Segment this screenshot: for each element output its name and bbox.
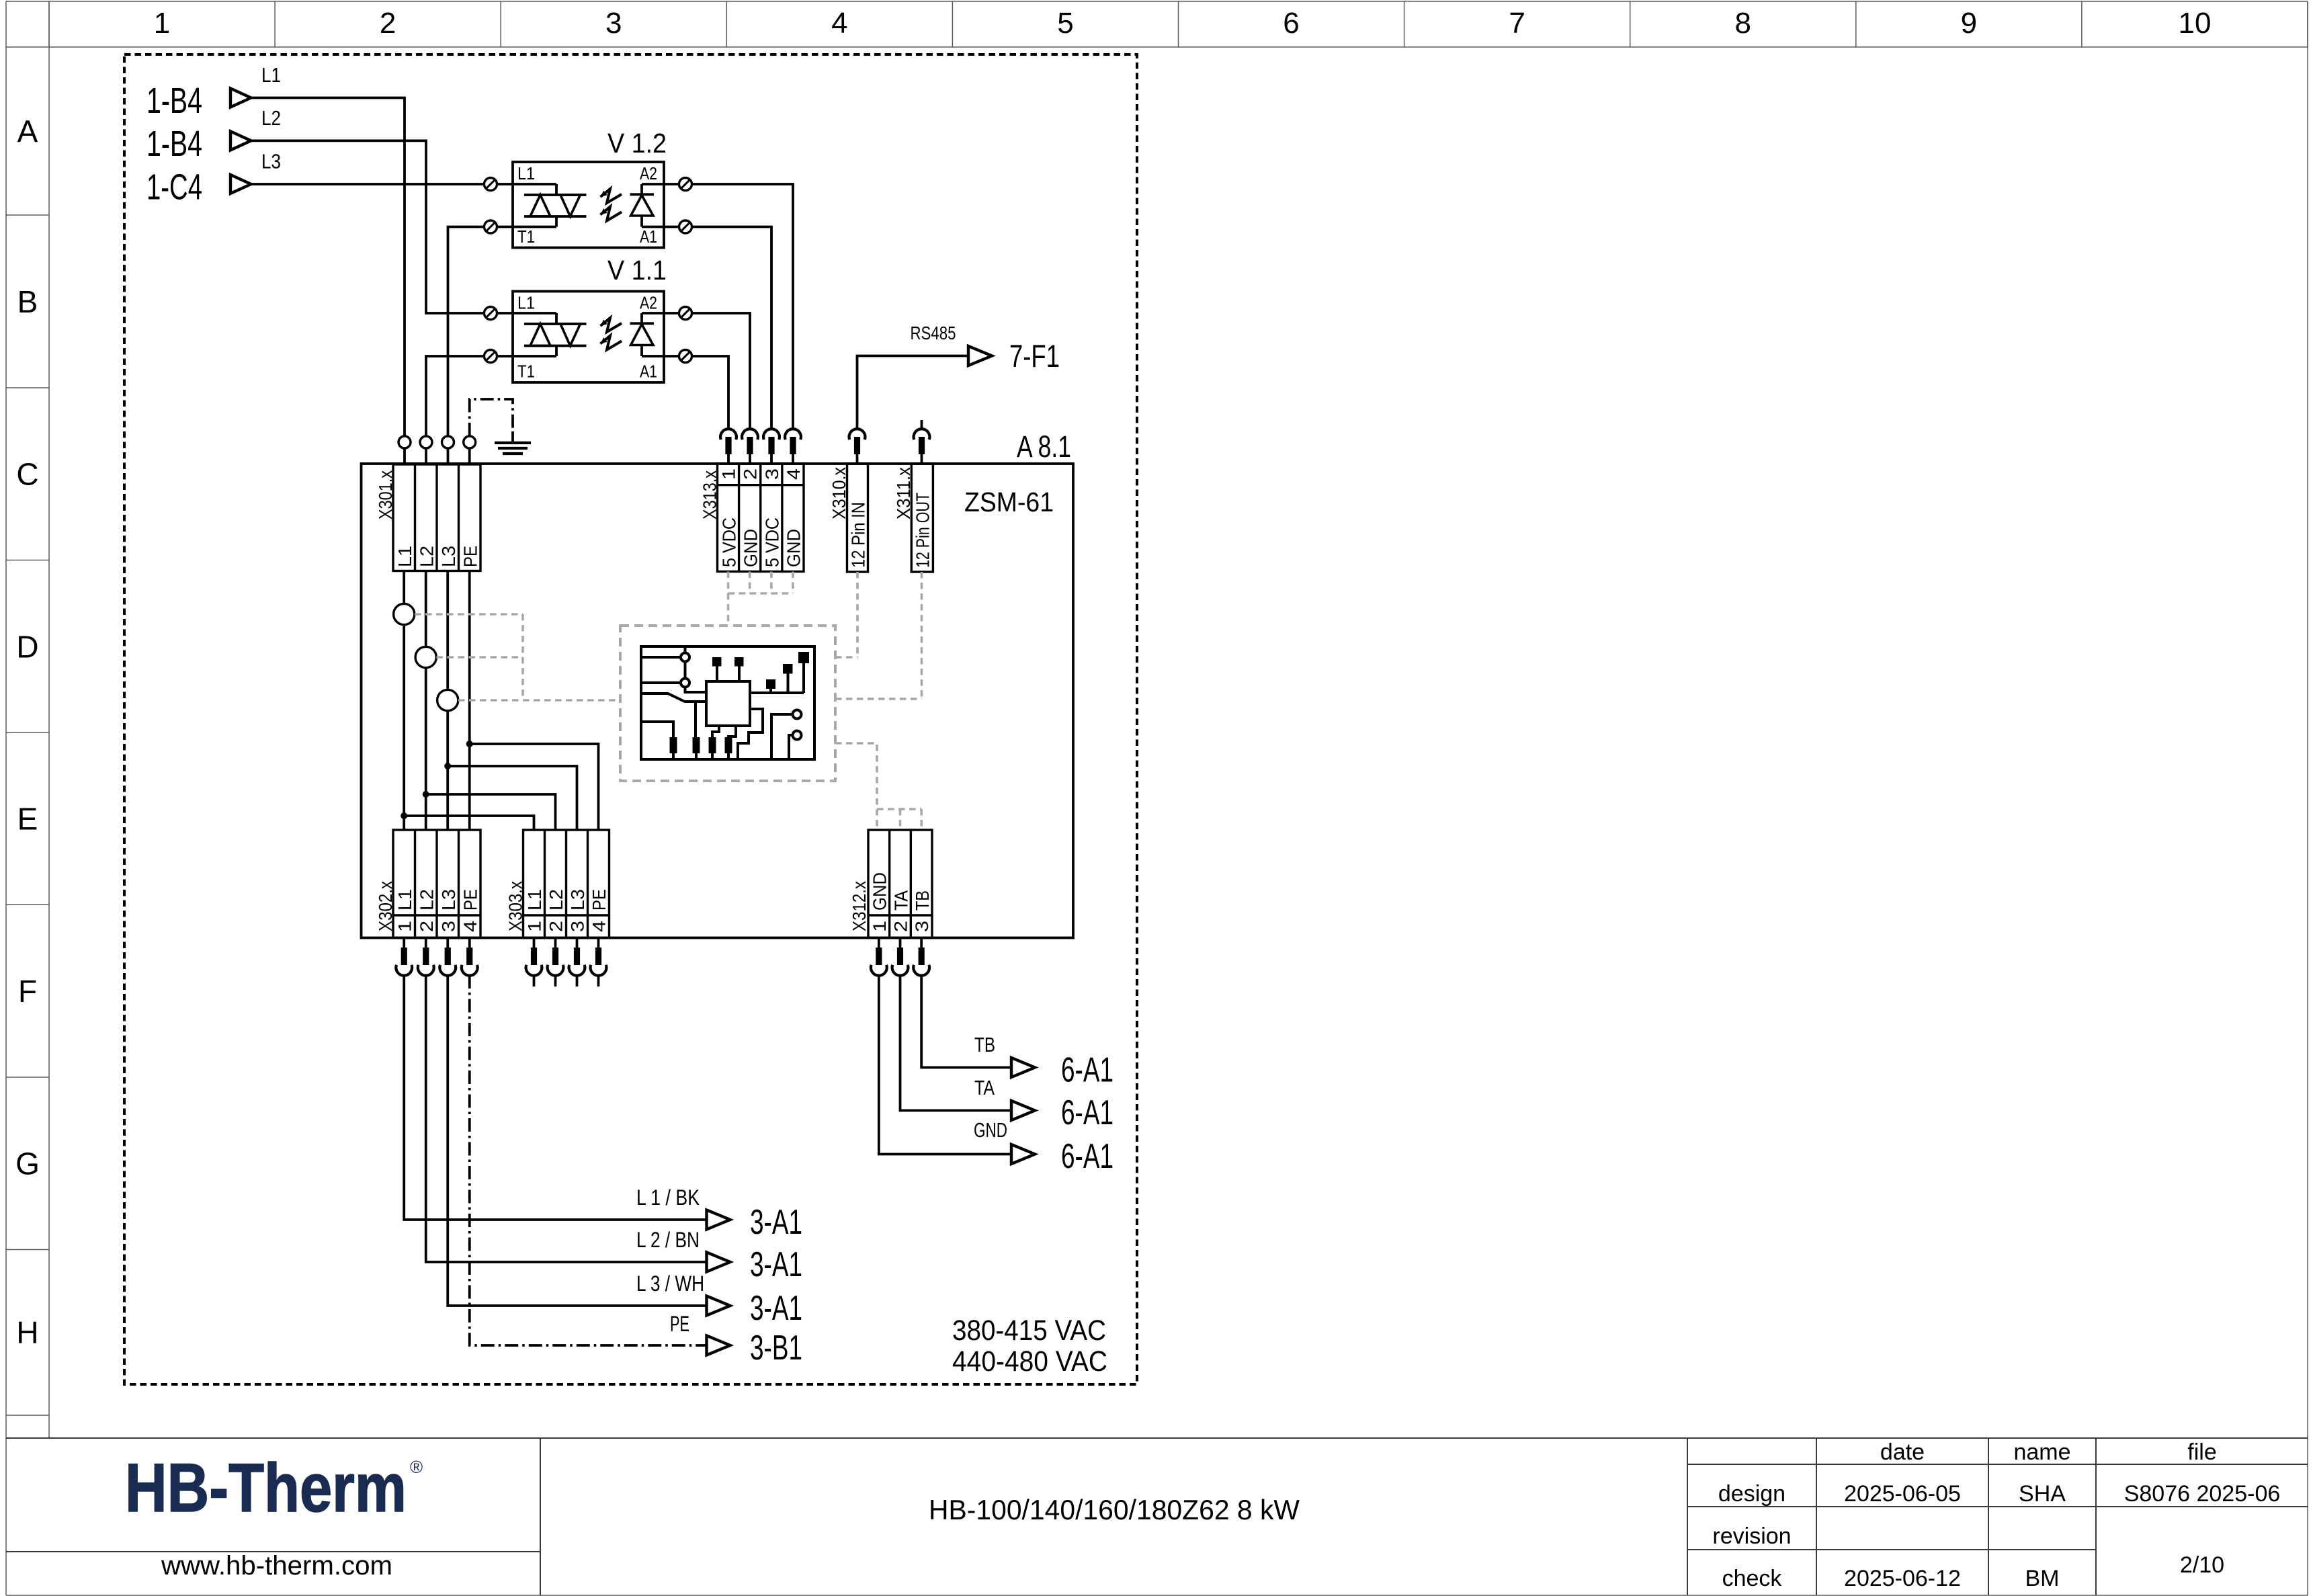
svg-text:TB: TB bbox=[974, 1033, 995, 1056]
svg-text:TA: TA bbox=[974, 1076, 995, 1099]
svg-text:GND: GND bbox=[870, 872, 890, 911]
svg-text:B: B bbox=[17, 284, 38, 319]
svg-text:3-A1: 3-A1 bbox=[750, 1245, 802, 1284]
svg-text:A1: A1 bbox=[640, 226, 657, 247]
svg-text:date: date bbox=[1880, 1439, 1925, 1465]
svg-text:380-415 VAC: 380-415 VAC bbox=[952, 1314, 1106, 1347]
svg-text:5 VDC: 5 VDC bbox=[762, 517, 783, 567]
svg-text:T1: T1 bbox=[517, 226, 535, 247]
svg-text:3-A1: 3-A1 bbox=[750, 1203, 802, 1242]
svg-text:C: C bbox=[16, 457, 38, 492]
svg-text:L1: L1 bbox=[517, 293, 535, 313]
svg-text:1-B4: 1-B4 bbox=[146, 81, 202, 121]
svg-text:2025-06-12: 2025-06-12 bbox=[1844, 1566, 1961, 1591]
svg-text:GND: GND bbox=[784, 529, 804, 567]
svg-text:®: ® bbox=[410, 1457, 423, 1477]
svg-text:file: file bbox=[2187, 1439, 2216, 1465]
svg-text:PE: PE bbox=[589, 889, 609, 911]
svg-text:2/10: 2/10 bbox=[2180, 1552, 2224, 1578]
svg-text:X313.x: X313.x bbox=[700, 470, 720, 519]
svg-text:L 3 / WH: L 3 / WH bbox=[636, 1271, 704, 1296]
svg-text:T1: T1 bbox=[517, 362, 535, 382]
svg-text:6-A1: 6-A1 bbox=[1061, 1093, 1113, 1132]
svg-text:PE: PE bbox=[460, 546, 480, 567]
svg-text:3: 3 bbox=[605, 7, 622, 40]
svg-text:L1: L1 bbox=[524, 889, 545, 911]
svg-text:3: 3 bbox=[912, 921, 932, 932]
svg-text:L3: L3 bbox=[438, 546, 459, 567]
svg-text:GND: GND bbox=[974, 1118, 1007, 1142]
svg-text:revision: revision bbox=[1712, 1523, 1791, 1549]
svg-text:L1: L1 bbox=[394, 546, 415, 567]
svg-text:7-F1: 7-F1 bbox=[1009, 338, 1060, 374]
svg-text:L3: L3 bbox=[567, 889, 588, 911]
svg-text:1-C4: 1-C4 bbox=[146, 167, 202, 208]
svg-text:TA: TA bbox=[890, 890, 911, 911]
svg-text:RS485: RS485 bbox=[911, 323, 956, 343]
svg-text:5 VDC: 5 VDC bbox=[718, 517, 739, 567]
svg-text:2025-06-05: 2025-06-05 bbox=[1844, 1481, 1961, 1507]
svg-text:4: 4 bbox=[831, 7, 847, 40]
svg-text:A1: A1 bbox=[640, 362, 657, 382]
svg-text:2: 2 bbox=[417, 921, 437, 932]
svg-text:2: 2 bbox=[891, 921, 911, 932]
svg-text:6-A1: 6-A1 bbox=[1061, 1051, 1113, 1090]
svg-text:1: 1 bbox=[525, 921, 545, 932]
svg-text:9: 9 bbox=[1961, 7, 1977, 40]
svg-text:BM: BM bbox=[2025, 1566, 2060, 1591]
svg-text:X310.x: X310.x bbox=[829, 467, 849, 519]
svg-text:4: 4 bbox=[460, 921, 480, 932]
svg-text:L2: L2 bbox=[546, 889, 566, 911]
svg-text:3-B1: 3-B1 bbox=[750, 1329, 802, 1368]
svg-text:L3: L3 bbox=[261, 150, 281, 173]
svg-text:H: H bbox=[16, 1315, 38, 1350]
svg-text:L1: L1 bbox=[517, 163, 535, 183]
svg-text:10: 10 bbox=[2178, 7, 2211, 40]
svg-text:3: 3 bbox=[762, 468, 782, 480]
svg-text:X303.x: X303.x bbox=[505, 881, 526, 931]
svg-text:4: 4 bbox=[589, 921, 609, 932]
svg-text:G: G bbox=[15, 1146, 40, 1181]
svg-text:X302.x: X302.x bbox=[375, 881, 396, 931]
svg-text:2: 2 bbox=[741, 468, 761, 480]
svg-text:L 2 / BN: L 2 / BN bbox=[636, 1228, 700, 1252]
svg-text:E: E bbox=[17, 802, 38, 837]
svg-text:X301.x: X301.x bbox=[375, 470, 396, 519]
svg-text:1-B4: 1-B4 bbox=[146, 124, 202, 164]
svg-text:3: 3 bbox=[568, 921, 588, 932]
svg-text:D: D bbox=[16, 630, 38, 665]
svg-text:L2: L2 bbox=[416, 889, 437, 911]
svg-text:A2: A2 bbox=[640, 163, 657, 183]
svg-text:L1: L1 bbox=[394, 889, 415, 911]
svg-text:HB-100/140/160/180Z62 8 kW: HB-100/140/160/180Z62 8 kW bbox=[929, 1494, 1300, 1525]
svg-text:8: 8 bbox=[1735, 7, 1751, 40]
svg-text:6-A1: 6-A1 bbox=[1061, 1137, 1113, 1176]
svg-text:design: design bbox=[1718, 1481, 1785, 1507]
svg-text:V 1.2: V 1.2 bbox=[607, 128, 667, 159]
svg-text:1: 1 bbox=[870, 921, 890, 932]
svg-text:V 1.1: V 1.1 bbox=[607, 255, 667, 286]
svg-text:3-A1: 3-A1 bbox=[750, 1289, 802, 1328]
svg-text:L 1 / BK: L 1 / BK bbox=[636, 1185, 700, 1210]
svg-text:X312.x: X312.x bbox=[849, 881, 870, 931]
svg-text:name: name bbox=[2013, 1439, 2070, 1465]
svg-text:440-480 VAC: 440-480 VAC bbox=[952, 1345, 1107, 1378]
svg-text:GND: GND bbox=[740, 529, 761, 567]
svg-text:3: 3 bbox=[438, 921, 458, 932]
svg-text:4: 4 bbox=[784, 468, 804, 480]
svg-text:L2: L2 bbox=[416, 546, 437, 567]
svg-text:L3: L3 bbox=[438, 889, 459, 911]
svg-text:7: 7 bbox=[1509, 7, 1525, 40]
svg-text:X311.x: X311.x bbox=[893, 467, 914, 519]
svg-text:2: 2 bbox=[546, 921, 566, 932]
svg-text:TB: TB bbox=[912, 890, 933, 911]
svg-text:A: A bbox=[17, 114, 38, 149]
svg-text:SHA: SHA bbox=[2019, 1481, 2066, 1507]
svg-text:1: 1 bbox=[154, 7, 170, 40]
svg-text:F: F bbox=[18, 974, 37, 1009]
svg-text:check: check bbox=[1722, 1566, 1783, 1591]
svg-text:PE: PE bbox=[670, 1312, 689, 1336]
svg-text:PE: PE bbox=[460, 889, 480, 911]
svg-text:12 Pin IN: 12 Pin IN bbox=[848, 502, 869, 568]
svg-text:www.hb-therm.com: www.hb-therm.com bbox=[161, 1551, 392, 1581]
svg-text:1: 1 bbox=[719, 468, 739, 480]
svg-text:A2: A2 bbox=[640, 293, 657, 313]
svg-text:6: 6 bbox=[1283, 7, 1299, 40]
svg-text:L1: L1 bbox=[261, 63, 281, 87]
svg-text:A 8.1: A 8.1 bbox=[1017, 429, 1071, 464]
svg-text:L2: L2 bbox=[261, 106, 281, 130]
svg-text:5: 5 bbox=[1057, 7, 1073, 40]
svg-text:ZSM-61: ZSM-61 bbox=[964, 487, 1054, 517]
svg-text:HB-Therm: HB-Therm bbox=[125, 1450, 407, 1526]
svg-text:S8076 2025-06: S8076 2025-06 bbox=[2124, 1481, 2281, 1507]
svg-text:1: 1 bbox=[394, 921, 415, 932]
svg-text:2: 2 bbox=[380, 7, 396, 40]
svg-text:12 Pin OUT: 12 Pin OUT bbox=[913, 493, 933, 568]
